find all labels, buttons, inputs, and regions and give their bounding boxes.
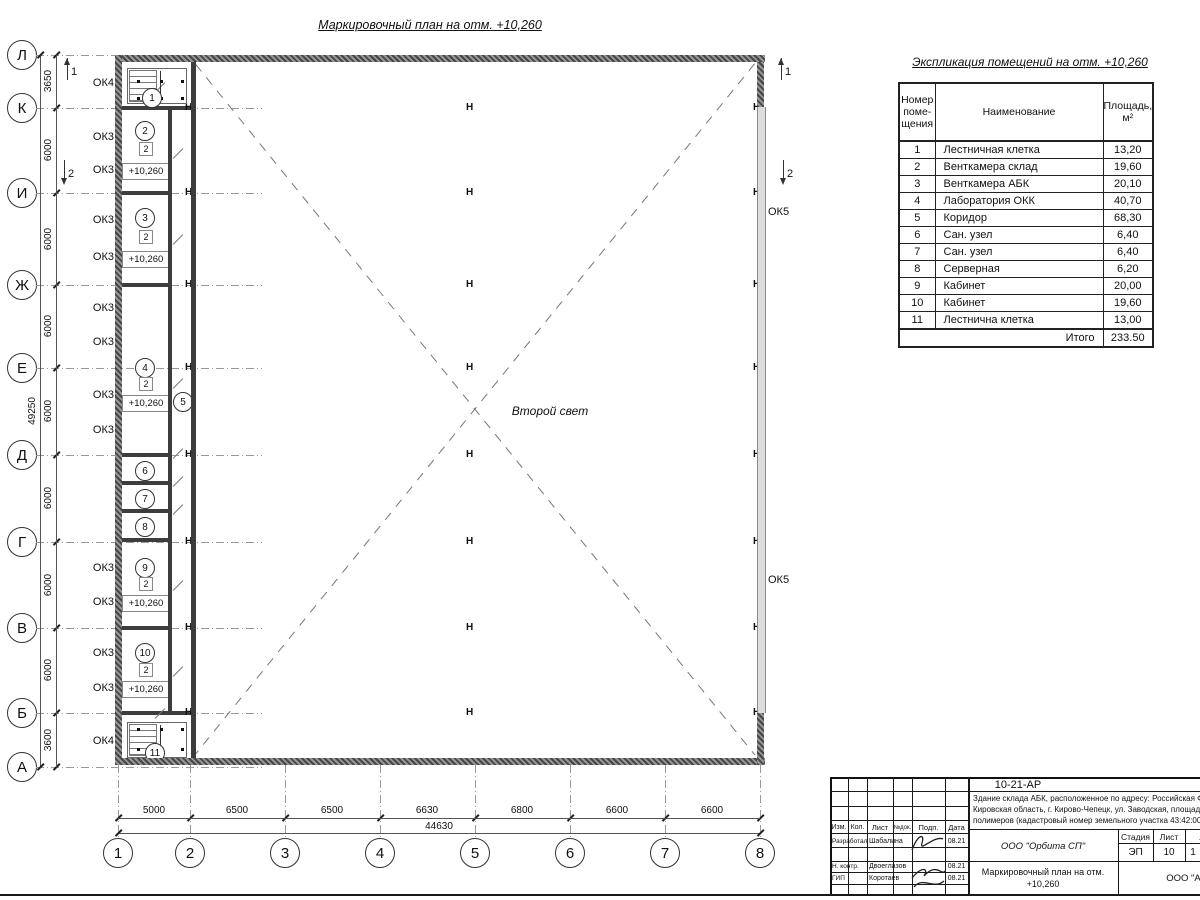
section-arrow	[61, 178, 67, 185]
room-name: Лестничная клетка	[935, 141, 1103, 159]
window-mark-label: ОК4	[80, 735, 114, 747]
dim-text-vertical: 6000	[41, 468, 55, 528]
column-symbol: Н	[466, 707, 473, 718]
axis-col-line	[118, 765, 119, 837]
dim-text-horizontal: 5000	[124, 804, 184, 816]
room-name: Сан. узел	[935, 227, 1103, 244]
room-name: Венткамера АБК	[935, 176, 1103, 193]
room-area: 6,40	[1103, 227, 1153, 244]
table-row: 7Сан. узел6,40	[899, 244, 1153, 261]
column-symbol: Н	[466, 102, 473, 113]
interior-wall	[120, 453, 172, 457]
section-arrow	[778, 58, 784, 65]
window-mark-label: ОК3	[80, 424, 114, 436]
axis-col-bubble: 4	[365, 838, 395, 868]
axis-col-line	[475, 765, 476, 837]
room-number: 2	[899, 159, 935, 176]
axis-col-bubble: 7	[650, 838, 680, 868]
door-type-mark: 2	[139, 377, 153, 391]
expl-table-title: Экспликация помещений на отм. +10,260	[905, 55, 1155, 69]
stair-post-square	[137, 748, 140, 751]
room-number-bubble: 6	[135, 461, 155, 481]
wall-right-bottom	[757, 713, 764, 765]
section-arrow	[64, 58, 70, 65]
room-number: 10	[899, 295, 935, 312]
dim-text-vertical: 6000	[41, 209, 55, 269]
table-row: 9Кабинет20,00	[899, 278, 1153, 295]
door-type-mark: 2	[139, 142, 153, 156]
room-area: 20,10	[1103, 176, 1153, 193]
dim-text-vertical: 6000	[41, 555, 55, 615]
window-mark-label: ОК3	[80, 214, 114, 226]
table-row: 5Коридор68,30	[899, 210, 1153, 227]
level-mark: +10,260	[122, 395, 170, 412]
axis-row-bubble: Д	[7, 440, 37, 470]
door-swing	[173, 476, 184, 487]
room-number: 5	[899, 210, 935, 227]
door-type-mark: 2	[139, 230, 153, 244]
axis-col-line	[285, 765, 286, 837]
sig-date: 08.21	[946, 875, 967, 882]
door-swing	[173, 666, 184, 677]
door-type-mark: 2	[139, 663, 153, 677]
section-number: 1	[71, 66, 81, 78]
axis-row-bubble: К	[7, 93, 37, 123]
second-light-label: Второй свет	[490, 404, 610, 418]
expl-header-name: Наименование	[935, 83, 1103, 141]
dim-text-horizontal: 6630	[397, 804, 457, 816]
axis-row-line	[36, 767, 262, 768]
interior-wall	[120, 626, 172, 630]
axis-col-bubble: 6	[555, 838, 585, 868]
org1-label: ООО "Орбита СП"	[968, 839, 1118, 853]
table-row: 3Венткамера АБК20,10	[899, 176, 1153, 193]
interior-wall	[120, 509, 172, 513]
dim-text-horizontal: 6500	[207, 804, 267, 816]
section-number: 2	[68, 168, 78, 180]
level-mark: +10,260	[122, 681, 170, 698]
expl-header-row: Номер поме- щения Наименование Площадь, …	[899, 83, 1153, 141]
axis-row-bubble: Л	[7, 40, 37, 70]
sig-date: 08.21	[946, 838, 967, 845]
interior-wall	[120, 481, 172, 485]
door-swing	[173, 378, 184, 389]
stair-post-square	[160, 728, 163, 731]
room-area: 13,20	[1103, 141, 1153, 159]
dim-text-horizontal: 6600	[682, 804, 742, 816]
door-swing	[173, 448, 184, 459]
table-row: 6Сан. узел6,40	[899, 227, 1153, 244]
room-number-bubble: 1	[142, 88, 162, 108]
expl-header-number: Номер поме- щения	[899, 83, 935, 141]
total-value: 233.50	[1103, 329, 1153, 347]
room-area: 13,00	[1103, 312, 1153, 330]
stair-post-square	[137, 80, 140, 83]
stage-value: ЭП	[1118, 846, 1153, 859]
wall-rooms-east	[168, 107, 172, 713]
axis-col-line	[665, 765, 666, 837]
sheet-label: Лист	[1153, 831, 1185, 842]
sig-name: Двоеглазов	[869, 863, 913, 870]
wall-left	[115, 55, 122, 765]
stair-post-square	[160, 80, 163, 83]
table-row: 11Лестнична клетка13,00	[899, 312, 1153, 330]
wall-top	[115, 55, 765, 62]
door-swing	[173, 580, 184, 591]
col-label-list: Лист	[867, 822, 893, 832]
sig-name: Шабалина	[869, 838, 913, 845]
room-name: Лаборатория ОКК	[935, 193, 1103, 210]
column-symbol: Н	[466, 187, 473, 198]
room-number-bubble: 3	[135, 208, 155, 228]
room-name: Венткамера склад	[935, 159, 1103, 176]
door-type-mark: 2	[139, 577, 153, 591]
axis-col-line	[190, 765, 191, 837]
room-name: Коридор	[935, 210, 1103, 227]
room-name: Серверная	[935, 261, 1103, 278]
stair-post-square	[181, 97, 184, 100]
room-area: 40,70	[1103, 193, 1153, 210]
wall-right-windows	[757, 107, 766, 713]
interior-wall	[120, 538, 172, 542]
window-mark-label: ОК3	[80, 596, 114, 608]
level-mark: +10,260	[122, 163, 170, 180]
table-row: 2Венткамера склад19,60	[899, 159, 1153, 176]
axis-row-line	[36, 542, 262, 543]
room-number-bubble: 2	[135, 121, 155, 141]
room-area: 19,60	[1103, 159, 1153, 176]
room-number: 9	[899, 278, 935, 295]
room-number: 3	[899, 176, 935, 193]
dim-text-horizontal: 6500	[302, 804, 362, 816]
room-number-bubble: 4	[135, 358, 155, 378]
column-symbol: Н	[466, 362, 473, 373]
table-row: 1Лестничная клетка13,20	[899, 141, 1153, 159]
room-number-bubble: 5	[173, 392, 193, 412]
window-mark-label: ОК5	[768, 574, 802, 586]
table-row: 8Серверная6,20	[899, 261, 1153, 278]
stair-post-square	[181, 748, 184, 751]
room-number-bubble: 10	[135, 643, 155, 663]
dim-text-horizontal: 6600	[587, 804, 647, 816]
room-number: 8	[899, 261, 935, 278]
dim-text-horizontal: 6800	[492, 804, 552, 816]
axis-row-bubble: Е	[7, 353, 37, 383]
interior-wall	[120, 283, 172, 287]
section-number: 1	[785, 66, 795, 78]
dim-line-horizontal-total	[118, 833, 760, 834]
sheets-label: Листов	[1188, 831, 1200, 842]
section-arrow	[780, 178, 786, 185]
dim-text-vertical-total: 49250	[25, 381, 39, 441]
dim-text-vertical: 3650	[41, 51, 55, 111]
window-mark-label: ОК3	[80, 336, 114, 348]
dim-text-vertical: 6000	[41, 640, 55, 700]
level-mark: +10,260	[122, 251, 170, 268]
stair-post-square	[137, 728, 140, 731]
axis-row-bubble: Г	[7, 527, 37, 557]
column-symbol: Н	[466, 279, 473, 290]
room-name: Кабинет	[935, 295, 1103, 312]
column-symbol: Н	[466, 449, 473, 460]
dim-text-vertical: 6000	[41, 120, 55, 180]
room-name: Кабинет	[935, 278, 1103, 295]
dim-line-vertical-segments	[56, 55, 57, 767]
sig-date: 08.21	[946, 863, 967, 870]
dim-line-horizontal-segments	[118, 818, 760, 819]
sig-role: ГИП	[832, 875, 868, 882]
window-mark-label: ОК4	[80, 77, 114, 89]
axis-col-bubble: 1	[103, 838, 133, 868]
window-mark-label: ОК5	[768, 206, 802, 218]
col-label-data: Дата	[945, 822, 968, 832]
door-swing	[173, 234, 184, 245]
wall-bottom	[115, 758, 765, 765]
axis-col-line	[760, 765, 761, 837]
section-number: 2	[787, 168, 797, 180]
window-mark-label: ОК3	[80, 131, 114, 143]
window-mark-label: ОК3	[80, 389, 114, 401]
axis-col-bubble: 2	[175, 838, 205, 868]
room-area: 19,60	[1103, 295, 1153, 312]
axis-col-line	[570, 765, 571, 837]
room-area: 20,00	[1103, 278, 1153, 295]
door-swing	[173, 148, 184, 159]
window-mark-label: ОК3	[80, 302, 114, 314]
room-number-bubble: 7	[135, 489, 155, 509]
col-label-izm: Изм.	[830, 822, 848, 832]
doc-title: Маркировочный план на отм. +10,260	[968, 864, 1118, 892]
project-description: Здание склада АБК, расположенное по адре…	[973, 793, 1200, 826]
axis-row-bubble: И	[7, 178, 37, 208]
axis-col-bubble: 8	[745, 838, 775, 868]
sheet-value: 10	[1153, 846, 1185, 859]
wall-hall-west	[191, 62, 196, 758]
sig-role: Разработал	[832, 838, 868, 845]
dim-text-vertical: 6000	[41, 381, 55, 441]
window-mark-label: ОК3	[80, 251, 114, 263]
total-label: Итого	[899, 329, 1103, 347]
expl-header-area: Площадь, м²	[1103, 83, 1153, 141]
stair-post-square	[137, 97, 140, 100]
signature-icon	[908, 830, 948, 892]
room-name: Лестнична клетка	[935, 312, 1103, 330]
table-row: 10Кабинет19,60	[899, 295, 1153, 312]
room-area: 6,20	[1103, 261, 1153, 278]
room-name: Сан. узел	[935, 244, 1103, 261]
room-number: 6	[899, 227, 935, 244]
table-row: 4Лаборатория ОКК40,70	[899, 193, 1153, 210]
column-symbol: Н	[466, 622, 473, 633]
room-number-bubble: 8	[135, 517, 155, 537]
wall-right-top	[757, 62, 764, 107]
room-number-bubble: 9	[135, 558, 155, 578]
org2-label: ООО "Альянс"	[1118, 871, 1200, 885]
document-code: 10-21-АР	[968, 779, 1068, 791]
stair-post-square	[181, 728, 184, 731]
room-number: 7	[899, 244, 935, 261]
col-label-kol: Кол.	[848, 822, 867, 832]
axis-row-bubble: Ж	[7, 270, 37, 300]
axis-col-bubble: 5	[460, 838, 490, 868]
expl-table: Номер поме- щения Наименование Площадь, …	[898, 82, 1154, 348]
hall-diagonal	[195, 64, 755, 756]
axis-row-bubble: А	[7, 752, 37, 782]
room-number: 1	[899, 141, 935, 159]
sheets-value: 1	[1185, 846, 1200, 859]
sig-role: Н. контр.	[832, 863, 868, 870]
interior-wall	[120, 191, 172, 195]
axis-col-bubble: 3	[270, 838, 300, 868]
window-mark-label: ОК3	[80, 164, 114, 176]
drawing-sheet: Маркировочный план на отм. +10,260 ЛКИЖЕ…	[0, 0, 1200, 900]
room-number: 11	[899, 312, 935, 330]
room-area: 68,30	[1103, 210, 1153, 227]
dim-text-vertical: 3600	[41, 710, 55, 770]
sig-name: Коротаев	[869, 875, 913, 882]
window-mark-label: ОК3	[80, 562, 114, 574]
dim-text-horizontal-total: 44630	[409, 820, 469, 832]
window-mark-label: ОК3	[80, 682, 114, 694]
room-number: 4	[899, 193, 935, 210]
level-mark: +10,260	[122, 595, 170, 612]
window-mark-label: ОК3	[80, 647, 114, 659]
stair-post-square	[181, 80, 184, 83]
stage-label: Стадия	[1118, 831, 1153, 842]
expl-total-row: Итого 233.50	[899, 329, 1153, 347]
axis-row-bubble: Б	[7, 698, 37, 728]
axis-col-line	[380, 765, 381, 837]
dim-text-vertical: 6000	[41, 296, 55, 356]
column-symbol: Н	[466, 536, 473, 547]
axis-row-bubble: В	[7, 613, 37, 643]
page-frame-bottom	[0, 894, 1200, 896]
door-swing	[173, 504, 184, 515]
room-area: 6,40	[1103, 244, 1153, 261]
